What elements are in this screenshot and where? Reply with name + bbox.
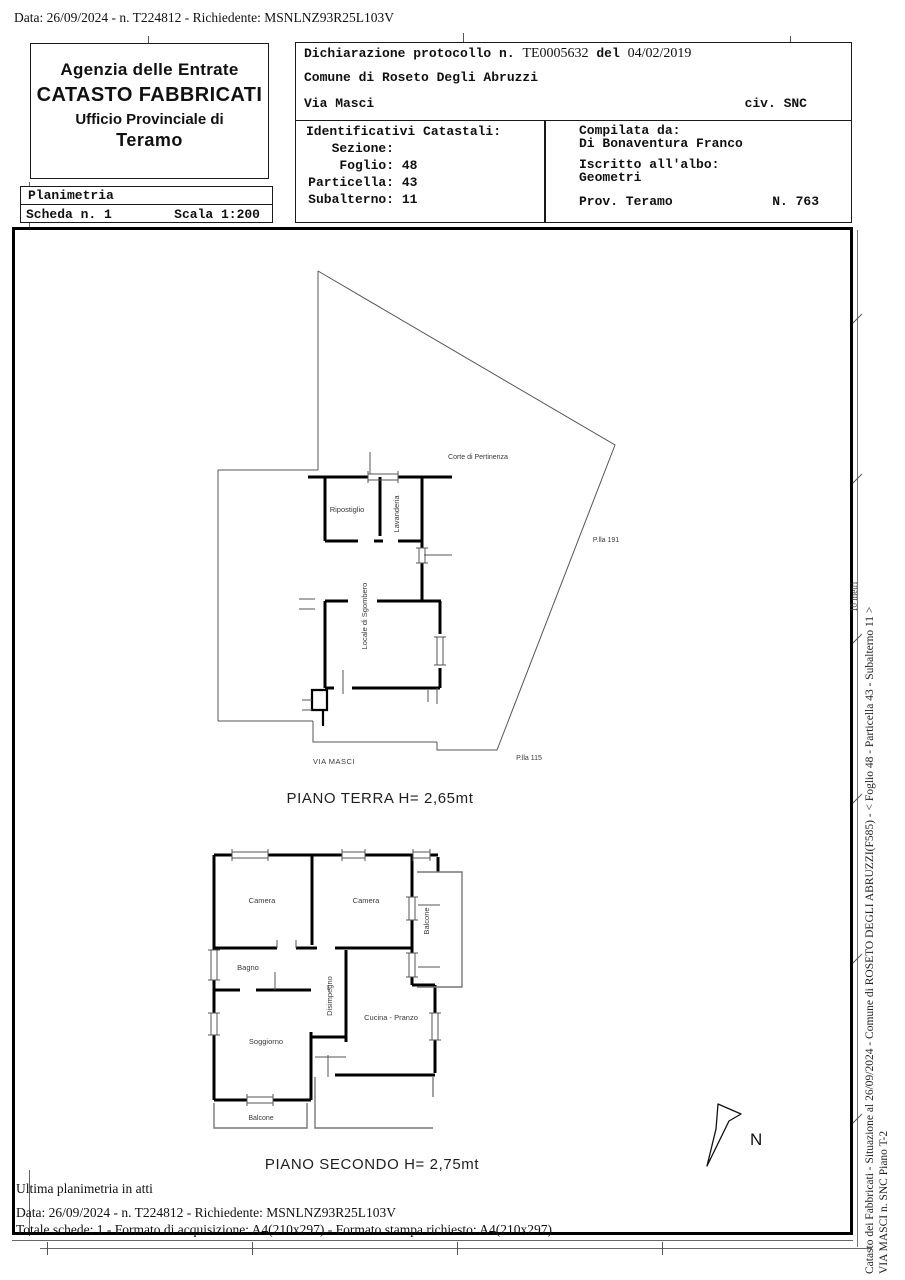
label-soggiorno: Soggiorno [249,1037,283,1046]
label-ripostiglio: Ripostiglio [330,505,365,514]
label-via-masci: VIA MASCI [313,757,355,766]
trim-line [40,1248,872,1249]
label-balcone-bottom: Balcone [248,1115,273,1122]
label-balcone-right: Balcone [422,907,431,934]
label-plla-191: P.lla 191 [593,537,619,544]
ground-floor-plan: Corte di Pertinenza Ripostiglio Lavander… [218,271,619,807]
trim-tick [47,1242,48,1255]
trim-tick [662,1242,663,1255]
label-disimpegno: Disimpegno [325,976,334,1016]
terrace-outline [315,1077,433,1128]
label-camera-1: Camera [249,896,277,905]
label-cucina-pranzo: Cucina - Pranzo [364,1013,418,1022]
label-plla-115: P.lla 115 [516,755,542,762]
north-arrow: N [707,1104,762,1166]
entrance-steps [312,690,327,726]
footer-ultima: Ultima planimetria in atti [16,1181,153,1197]
scale-ruler-line [857,230,858,1247]
sidebar-line-address: VIA MASCI n. SNC Piano T-2 [878,418,892,1274]
floor-plan-canvas: Corte di Pertinenza Ripostiglio Lavander… [0,0,905,1280]
sidebar-line-catasto: Catasto dei Fabbricati - Situazione al 2… [864,418,878,1274]
scale-note: 10 metri [849,562,859,612]
sidebar-rotated-text: Catasto dei Fabbricati - Situazione al 2… [864,418,891,1274]
ground-floor-title: PIANO TERRA H= 2,65mt [287,790,474,807]
north-letter: N [750,1130,762,1149]
trim-tick [252,1242,253,1255]
label-corte-di-pertinenza: Corte di Pertinenza [448,454,508,461]
label-locale-sgombero: Locale di Sgombero [360,583,369,650]
second-floor-title: PIANO SECONDO H= 2,75mt [265,1156,480,1173]
label-lavanderia: Lavanderia [392,495,401,533]
second-floor-plan: Camera Camera Balcone Bagno Disimpegno C… [208,849,479,1173]
footer-data: Data: 26/09/2024 - n. T224812 - Richiede… [16,1205,396,1221]
north-arrow-shape [707,1104,741,1166]
courtyard-boundary [218,271,615,750]
footer-totale: Totale schede: 1 - Formato di acquisizio… [16,1222,552,1238]
trim-tick [457,1242,458,1255]
label-bagno: Bagno [237,963,259,972]
label-camera-2: Camera [353,896,381,905]
